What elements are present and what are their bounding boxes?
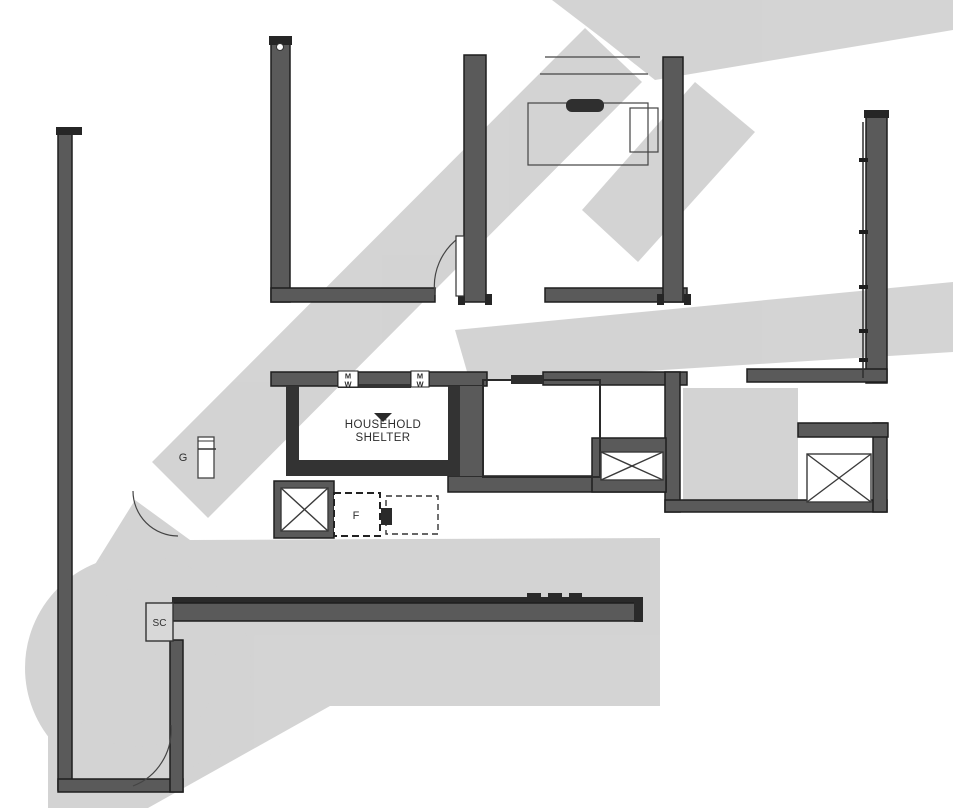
- wall-topright-vertical: [663, 57, 683, 302]
- wall-corridor-b: [358, 372, 411, 386]
- window-mullion: [859, 329, 868, 333]
- wall-rear-stub: [665, 372, 680, 512]
- vent-dash: [527, 593, 541, 597]
- door-leaf: [456, 236, 464, 296]
- floor-plan-canvas: HOUSEHOLD SHELTER M W M W: [0, 0, 953, 808]
- wall-bottomleft-right: [170, 640, 183, 792]
- wall-bracket: [485, 294, 492, 305]
- meter-label-w: W: [344, 380, 352, 389]
- window-mullion: [859, 358, 868, 362]
- watermark-patch-right: [683, 388, 798, 508]
- vent-dash: [569, 593, 582, 597]
- window-mullion: [859, 230, 868, 234]
- wall-topleft-bottom: [271, 288, 435, 302]
- wall-bottom-edge: [172, 597, 643, 603]
- wall-left-exterior: [58, 130, 72, 790]
- wall-corridor-c: [429, 372, 487, 386]
- wall-bottomleft-bottom: [58, 779, 183, 792]
- ac-ledge-x-box-right: [807, 454, 871, 502]
- shelter-wall-bottom: [286, 460, 460, 476]
- ac-ledge-x-box-middle: [601, 452, 663, 480]
- floor-plan-drawing: HOUSEHOLD SHELTER M W M W: [0, 0, 953, 808]
- wall-centertop-vertical: [464, 55, 486, 302]
- shelter-wall-right-outer: [460, 386, 483, 476]
- wall-ledge-top: [798, 423, 888, 437]
- bottom-wall-vent: [527, 593, 582, 597]
- wall-corner-dot: [277, 44, 284, 51]
- shelter-wall-right-inner: [448, 386, 460, 476]
- wall-window-cap: [864, 110, 889, 118]
- fridge-label: F: [353, 510, 360, 522]
- tap-mark: [381, 508, 392, 525]
- shoe-cabinet: SC: [146, 603, 173, 641]
- wall-bottom-endcap: [634, 599, 643, 622]
- wall-bracket: [657, 294, 664, 305]
- window-mullion: [859, 285, 868, 289]
- bathroom-door-leaf: [511, 375, 543, 384]
- wall-right-window: [866, 113, 887, 383]
- wall-left-top-cap: [56, 127, 82, 135]
- vent-dash: [548, 593, 562, 597]
- gas-hob-label: G: [179, 452, 188, 464]
- household-shelter-label-line2: SHELTER: [356, 432, 411, 444]
- wall-topleft-vertical: [271, 38, 290, 302]
- pillow: [566, 99, 604, 112]
- meter-label-w: W: [416, 380, 424, 389]
- counter-strip: [198, 437, 214, 478]
- window-mullion: [859, 158, 868, 162]
- wall-bracket: [684, 294, 691, 305]
- wall-topright-bottom: [747, 369, 887, 382]
- wall-corridor-a: [271, 372, 338, 386]
- household-shelter-label-line1: HOUSEHOLD: [345, 419, 421, 431]
- ac-ledge-x-box-left: [281, 488, 328, 531]
- wall-bottom-long: [172, 603, 637, 621]
- sc-label: SC: [153, 618, 167, 629]
